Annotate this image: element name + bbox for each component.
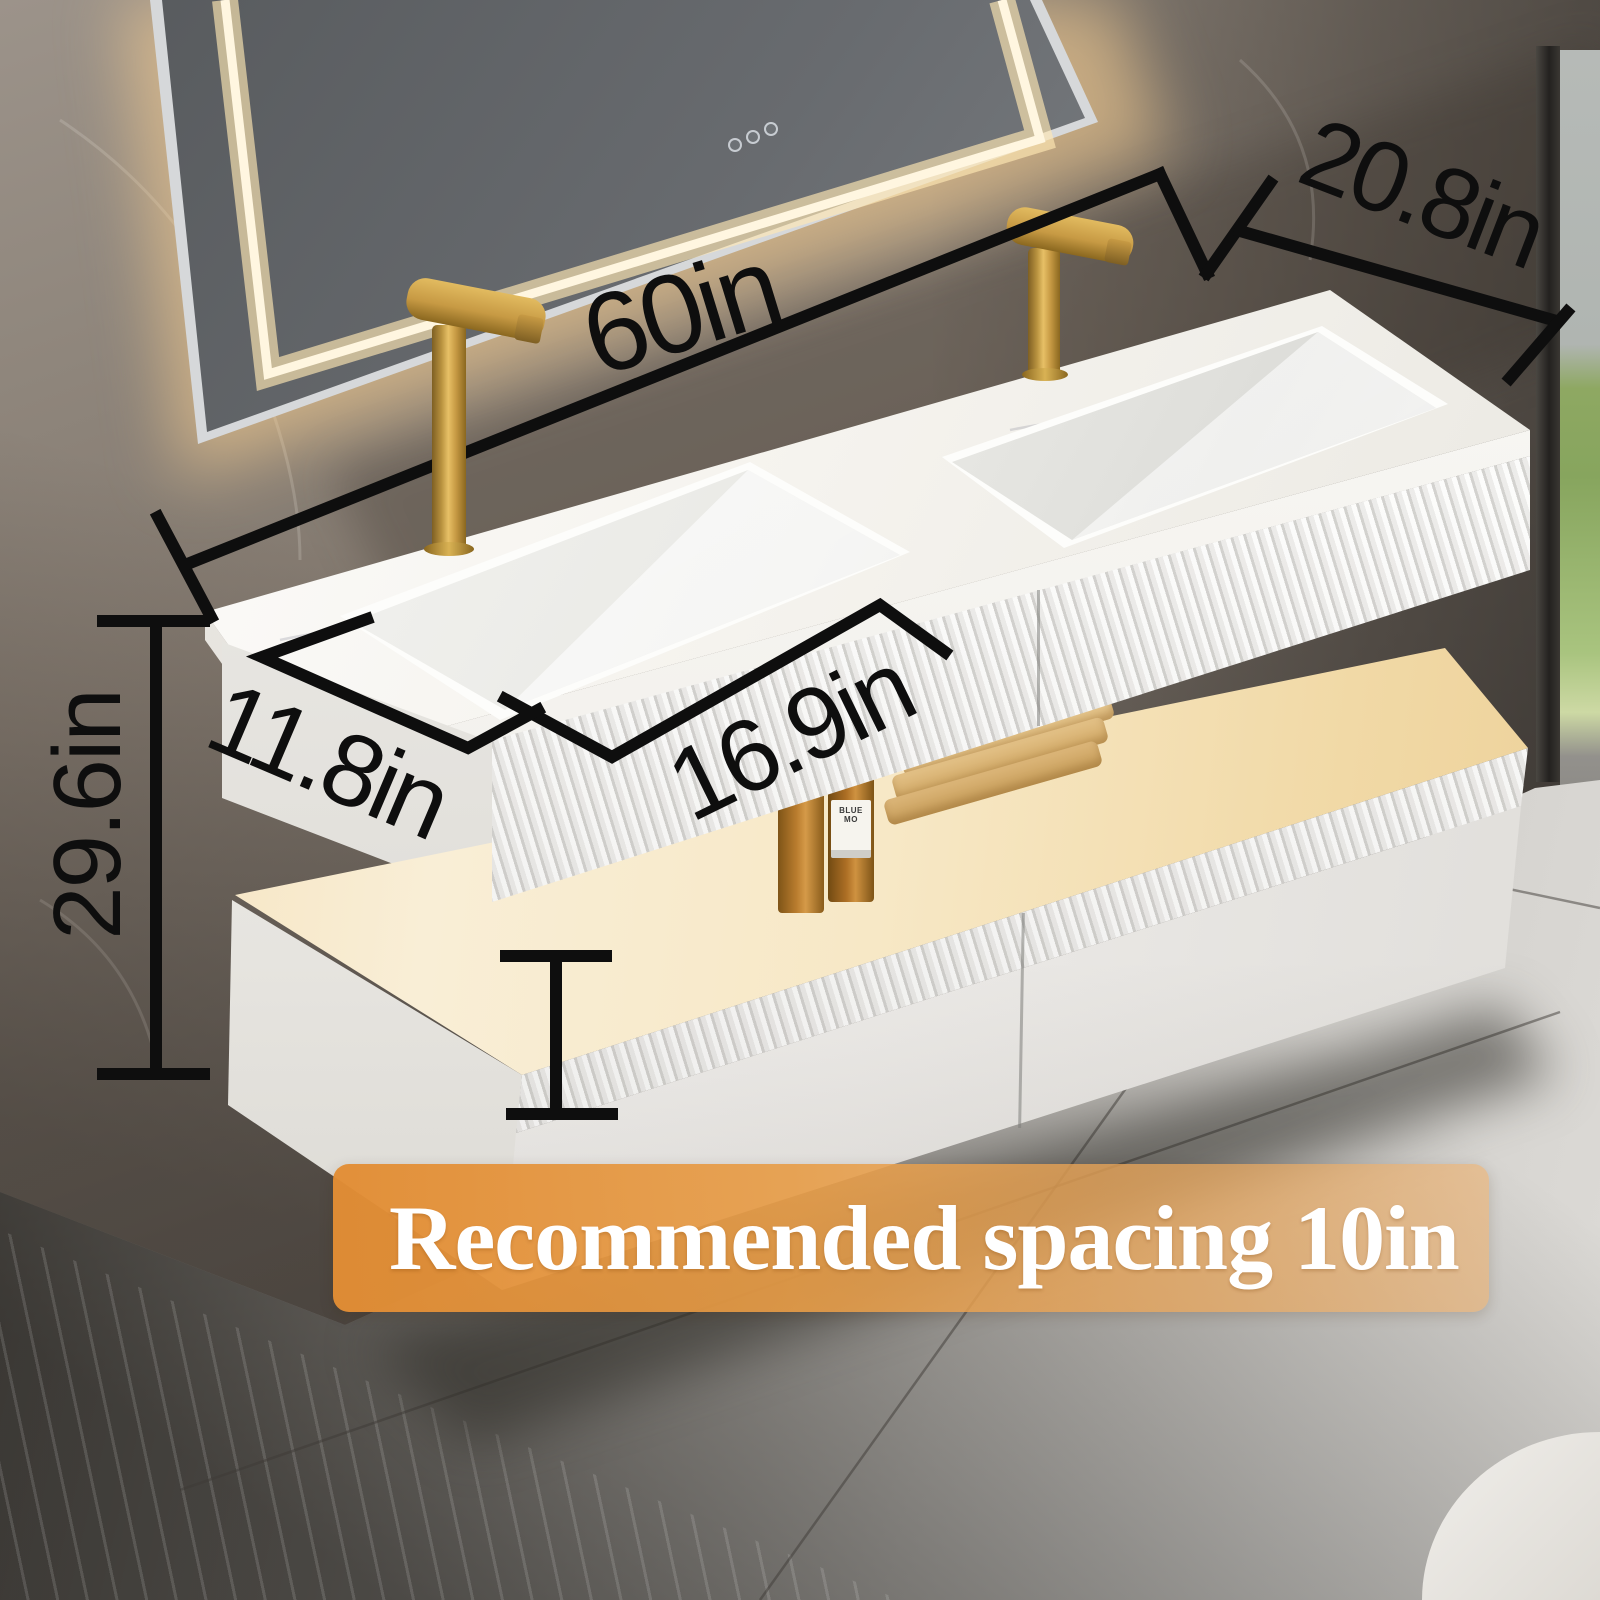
dimension-label-height: 29.6in (33, 625, 143, 1005)
banner-text: Recommended spacing 10in (333, 1185, 1459, 1291)
product-image-canvas: BLUE MO 60in 20.8in 16.9in (0, 0, 1600, 1600)
recommended-spacing-banner: Recommended spacing 10in (333, 1164, 1489, 1312)
left-faucet-base (424, 542, 474, 556)
left-faucet-stem (432, 325, 466, 553)
dimension-60in-tick-right (1160, 174, 1207, 273)
